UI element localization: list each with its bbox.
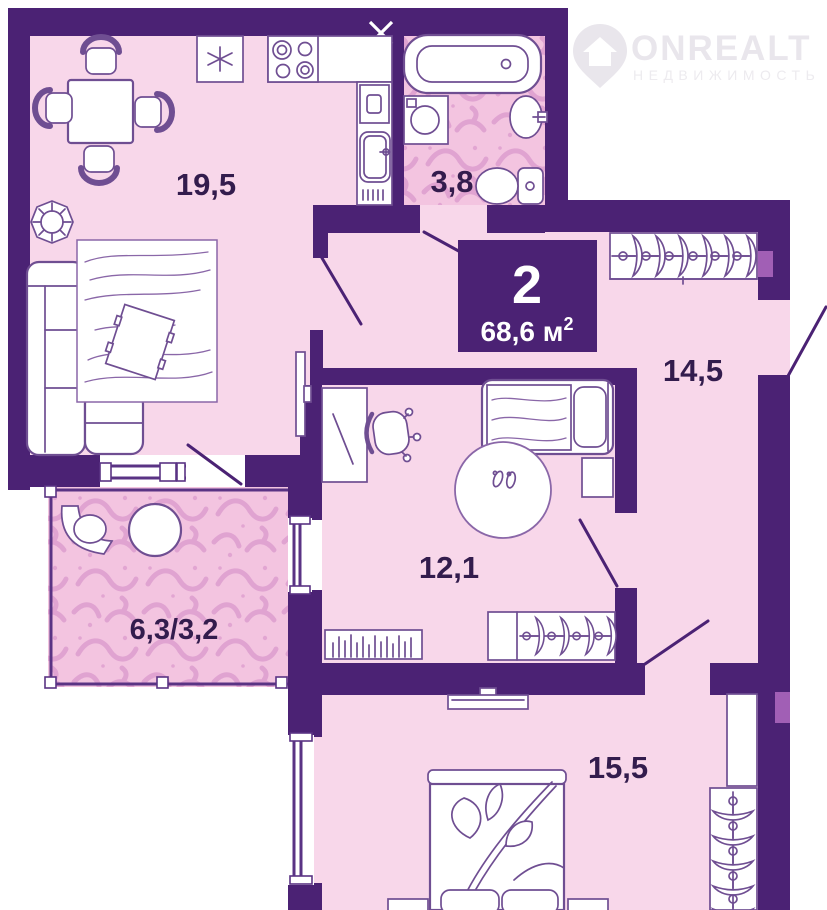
bedroom-area-label: 15,5 <box>588 750 648 785</box>
bathroom-door-opening <box>420 205 487 233</box>
nightstand <box>582 458 613 497</box>
bookshelf <box>325 630 422 659</box>
logo-subtitle: НЕДВИЖИМОСТЬ <box>633 67 820 83</box>
bedroom-door-opening <box>643 663 710 695</box>
room-wardrobe <box>488 612 616 660</box>
svg-text:68,6 м2: 68,6 м2 <box>480 314 573 347</box>
nightstand <box>388 899 428 910</box>
balcony-area-label: 6,3/3,2 <box>130 614 219 646</box>
area-badge: 2 68,6 м2 <box>458 240 597 352</box>
nightstand <box>568 899 608 910</box>
rooms-count: 2 <box>512 255 542 315</box>
room-window <box>288 516 312 594</box>
logo: ONREALT НЕДВИЖИМОСТЬ <box>573 24 820 88</box>
balcony-table <box>129 504 181 556</box>
bedroom-closet <box>727 694 757 786</box>
bedroom-window <box>288 733 314 885</box>
room-door-opening <box>613 513 639 589</box>
washing-machine-icon <box>404 96 448 144</box>
entrance-opening <box>758 300 790 376</box>
fridge-icon <box>197 36 243 82</box>
bedroom-wall-marker <box>775 692 790 723</box>
bedroom-wardrobe <box>710 788 757 910</box>
hallway-area-label: 14,5 <box>663 353 723 388</box>
hallway-door-marker <box>758 251 773 277</box>
logo-title: ONREALT <box>631 29 812 68</box>
floorplan-image: 19,5 3,8 14,5 12,1 6,3/3,2 15,5 2 68,6 м… <box>0 0 827 910</box>
house-pin-icon <box>573 24 627 88</box>
bathtub-icon <box>404 35 541 93</box>
double-bed <box>428 770 566 910</box>
plant-icon <box>31 201 73 243</box>
bathroom-area-label: 3,8 <box>430 164 473 199</box>
stove-icon <box>268 36 318 82</box>
kitchen-living-area-label: 19,5 <box>176 167 236 202</box>
hallway-wardrobe <box>610 233 757 284</box>
room-area-label: 12,1 <box>419 550 479 585</box>
floorplan-svg: 19,5 3,8 14,5 12,1 6,3/3,2 15,5 2 68,6 м… <box>0 0 827 910</box>
toilet-icon <box>476 168 543 204</box>
entrance-door-swing <box>788 307 826 376</box>
oven-icon <box>360 85 389 123</box>
desk <box>322 388 367 482</box>
round-rug <box>455 442 551 538</box>
